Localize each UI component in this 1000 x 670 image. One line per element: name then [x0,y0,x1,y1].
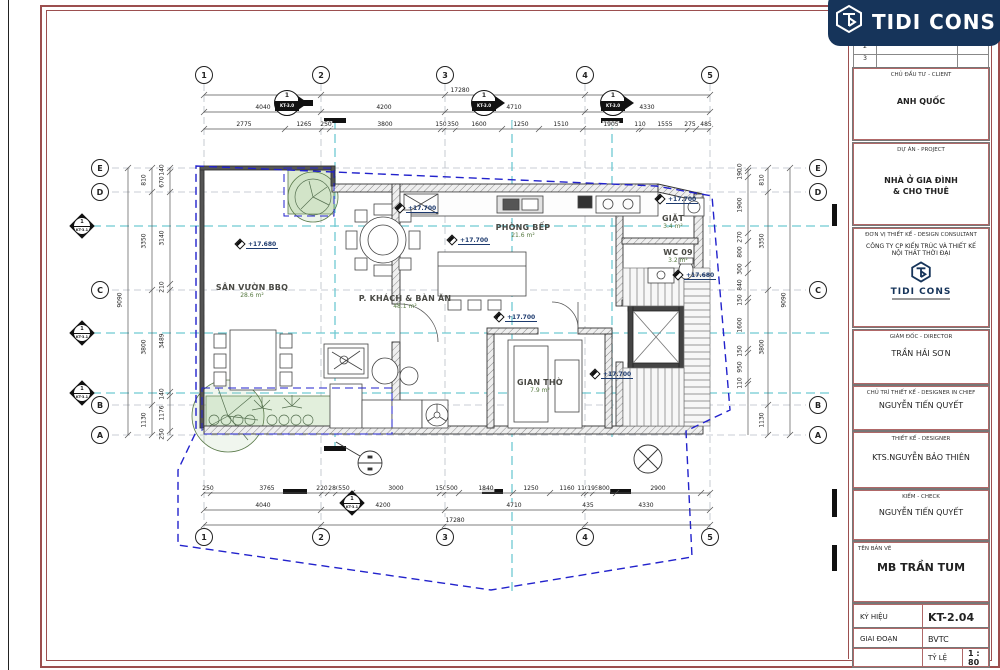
level-marker: +17.680 [674,271,716,280]
dim-label: 670 [159,176,166,187]
dim-label: 840 [737,279,744,290]
dim-label: 3800 [376,121,393,128]
level-flag-icon [493,311,504,322]
room-name: GIAN THỜ [517,378,563,387]
level-marker: +17.700 [396,204,438,213]
dim-label: 140 [159,164,166,175]
dim-label: 1250 [512,121,529,128]
dim-label: 2775 [235,121,252,128]
section-arrow-icon [624,96,634,110]
dim-label: 3800 [141,339,148,354]
grid-bubble-col: 5 [701,528,719,546]
dim-label: 3350 [759,233,766,248]
level-marker: +17.700 [591,370,633,379]
grid-bubble-col: 5 [701,66,719,84]
room-name: P. KHÁCH & BÀN ĂN [359,294,451,303]
level-value: +17.680 [246,241,278,249]
dim-label: 350 [446,121,459,128]
dim-label: 4040 [254,502,271,509]
level-value: +17.700 [406,205,438,213]
plan-annotations: 2775126525038001503501600125015101905110… [0,0,1000,670]
grid-bubble-col: 1 [195,66,213,84]
dim-label: 4040 [254,104,271,111]
room-name: PHÒNG BẾP [496,223,551,232]
dim-label: 950 [737,361,744,372]
dim-label: 110 [737,377,744,388]
level-value: +17.700 [601,371,633,379]
dim-label: 270 [737,231,744,242]
room-label: WC 093.2 m² [663,248,693,264]
grid-bubble-col: 4 [576,528,594,546]
dim-label: 150 [737,294,744,305]
section-marker-diamond: 1KT-3.1 [69,213,94,238]
dim-label-overall: 9090 [781,292,788,307]
section-ref: KT-3.0 [275,101,299,111]
section-ref: KT-3.0 [472,101,496,111]
section-arrow-icon [298,96,308,110]
dim-label: 3800 [759,339,766,354]
dim-label: 1130 [759,412,766,427]
dim-label-overall: 17280 [449,87,470,94]
dim-label: 1265 [295,121,312,128]
grid-bubble-col: 3 [436,66,454,84]
dim-label: 1600 [737,317,744,332]
dim-label: 275 [683,121,696,128]
dim-label: 250 [201,485,214,492]
section-marker-circle: 1KT-3.0 [274,90,300,116]
level-marker: +17.700 [656,195,698,204]
dim-label: 300 [737,263,744,274]
dim-label: 550 [337,485,350,492]
dim-label: 140 [159,388,166,399]
dim-label: 210 [159,281,166,292]
dim-label: 1600 [470,121,487,128]
section-number: 1 [74,325,90,334]
dim-label: 4330 [638,104,655,111]
dim-label: 110 [633,121,646,128]
dim-label: 190 [737,168,744,179]
dim-label: 2900 [649,485,666,492]
dim-label: 3000 [387,485,404,492]
section-number: 1 [601,91,625,101]
dim-label: 1130 [141,412,148,427]
level-value: +17.680 [684,272,716,280]
level-marker: +17.680 [236,240,278,249]
section-number: 1 [74,218,90,227]
section-ref: KT-3.1 [74,334,90,341]
drawing-sheet: 2775126525038001503501600125015101905110… [0,0,1000,670]
dim-label: 810 [141,174,148,185]
room-label: P. KHÁCH & BÀN ĂN48.1 m² [359,294,451,310]
dim-label: 1555 [656,121,673,128]
section-number: 1 [275,91,299,101]
dim-label: 485 [699,121,712,128]
dim-label: 4200 [375,104,392,111]
dim-label: 800 [737,246,744,257]
banner-logo-text: TIDI CONS [872,4,996,34]
level-marker: +17.700 [495,313,537,322]
room-area: 7.9 m² [517,387,563,394]
section-arrow-icon [495,96,505,110]
dim-label: 3140 [159,230,166,245]
level-flag-icon [654,193,665,204]
section-number: 1 [344,495,360,504]
room-label: GIAN THỜ7.9 m² [517,378,563,394]
grid-bubble-row: C [91,281,109,299]
section-marker-circle: 1KT-3.0 [600,90,626,116]
room-name: WC 09 [663,248,693,257]
dim-label: 150 [737,345,744,356]
dim-label: 1900 [737,197,744,212]
dim-label: 1905 [602,121,619,128]
dim-label: 1176 [159,405,166,420]
dim-label: 1250 [522,485,539,492]
level-flag-icon [672,269,683,280]
grid-bubble-row: A [809,426,827,444]
dim-label-overall: 9090 [117,292,124,307]
section-marker-diamond: 1KT-3.1 [69,320,94,345]
dim-label: 250 [319,121,332,128]
dim-label: 4330 [637,502,654,509]
section-ref: KT-3.1 [74,227,90,234]
room-label: GIẶT3.4 m² [662,214,684,230]
grid-bubble-col: 4 [576,66,594,84]
dim-label: 3765 [258,485,275,492]
level-value: +17.700 [458,237,490,245]
tidicons-logo-icon [834,4,864,34]
grid-bubble-row: D [809,183,827,201]
grid-bubble-row: D [91,183,109,201]
dim-label: 1510 [552,121,569,128]
level-flag-icon [234,238,245,249]
grid-bubble-col: 1 [195,528,213,546]
room-area: 3.2 m² [663,257,693,264]
dim-label: 250 [159,428,166,439]
dim-label: 810 [759,174,766,185]
room-area: 48.1 m² [359,303,451,310]
level-value: +17.700 [505,314,537,322]
grid-bubble-row: C [809,281,827,299]
dim-label: 4710 [505,104,522,111]
grid-bubble-row: B [91,396,109,414]
grid-bubble-col: 2 [312,66,330,84]
section-marker-diamond: 1KT-3.1 [339,490,364,515]
section-number: 1 [472,91,496,101]
dim-label-overall: 17280 [444,517,465,524]
dim-label: 435 [581,502,594,509]
room-name: SÂN VƯỜN BBQ [216,283,288,292]
dim-label: 800 [597,485,610,492]
dim-label: 3489 [159,333,166,348]
section-ref: KT-3.0 [601,101,625,111]
dim-label: 4710 [505,502,522,509]
room-label: SÂN VƯỜN BBQ28.6 m² [216,283,288,299]
room-area: 21.6 m² [496,232,551,239]
dim-label: 1160 [558,485,575,492]
company-banner: TIDI CONS [828,0,1000,46]
grid-bubble-row: A [91,426,109,444]
level-marker: +17.700 [448,236,490,245]
room-name: GIẶT [662,214,684,223]
level-flag-icon [589,368,600,379]
grid-bubble-col: 2 [312,528,330,546]
dim-label: 500 [445,485,458,492]
section-ref: KT-3.1 [344,504,360,511]
grid-bubble-row: B [809,396,827,414]
section-marker-circle: 1KT-3.0 [471,90,497,116]
level-value: +17.700 [666,196,698,204]
room-area: 3.4 m² [662,223,684,230]
level-flag-icon [446,234,457,245]
grid-bubble-col: 3 [436,528,454,546]
room-label: PHÒNG BẾP21.6 m² [496,223,551,239]
dim-label: 4200 [374,502,391,509]
grid-bubble-row: E [809,159,827,177]
grid-bubble-row: E [91,159,109,177]
section-number: 1 [74,385,90,394]
section-ref: KT-3.1 [74,394,90,401]
dim-label: 1840 [477,485,494,492]
dim-label: 3350 [141,233,148,248]
level-flag-icon [394,202,405,213]
room-area: 28.6 m² [216,292,288,299]
